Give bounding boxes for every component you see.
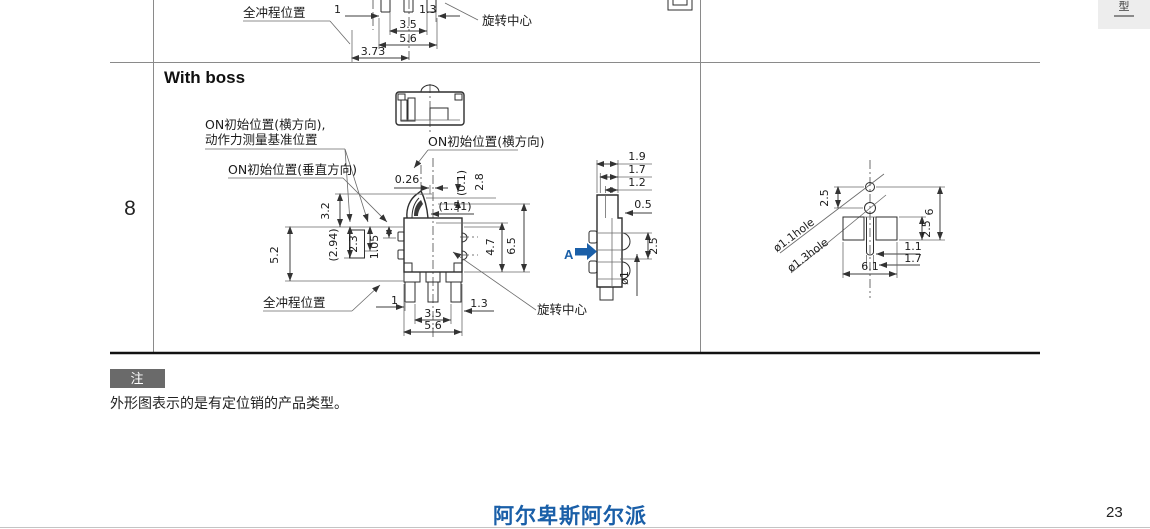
dim-0-26: 0.26 [395, 173, 420, 186]
dim-6-5: 6.5 [505, 237, 518, 255]
dim-2-94: (2.94) [327, 228, 340, 261]
full-stroke-label: 全冲程位置 [263, 295, 326, 310]
dim-top-5-6: 5.6 [399, 32, 417, 45]
dim-5-2: 5.2 [268, 246, 281, 264]
dim-top-1: 1 [334, 3, 341, 16]
datasheet-page: 全冲程位置 旋转中心 1 1.3 3.5 5.6 3.73 ON初始位置(横方向… [0, 0, 1150, 529]
dim-hp2-5: 2.5 [920, 220, 933, 238]
dim-3-2: 3.2 [319, 202, 332, 220]
view-a-letter: A [564, 247, 574, 262]
note-badge: 注 [110, 369, 165, 388]
dim-h1-7: 1.7 [904, 252, 922, 265]
note-text: 外形图表示的是有定位销的产品类型。 [110, 393, 348, 413]
dim-4-7: 4.7 [484, 238, 497, 256]
dim-s1-2: 1.2 [628, 176, 646, 189]
rotation-center-label-top: 旋转中心 [482, 13, 533, 28]
view-a-arrow-icon [575, 243, 597, 260]
dim-2-8: 2.8 [473, 173, 486, 191]
dim-s1-9: 1.9 [628, 150, 646, 163]
dim-2-3-boxed: 2.3 [347, 235, 360, 253]
side-index-tab: 型 [1098, 0, 1150, 29]
dim-s0-5: 0.5 [634, 198, 652, 211]
row-number: 8 [112, 197, 148, 221]
top-view [396, 84, 464, 133]
dim-b5-6: 5.6 [424, 319, 442, 332]
full-stroke-label-top: 全冲程位置 [243, 5, 306, 20]
hole-pattern-view: ø1.1hole ø1.3hole 2.5 6 2.5 1.1 1.7 6.1 [771, 160, 945, 298]
dim-1-51: (1.51) [438, 200, 471, 213]
dim-h6-1: 6.1 [861, 260, 879, 273]
side-view: 1.9 1.7 1.2 0.5 2.5 ø1 A [564, 150, 660, 300]
on-init-h-force-line1: ON初始位置(横方向), [205, 117, 325, 132]
section-heading: With boss [164, 68, 245, 88]
on-init-h-label: ON初始位置(横方向) [428, 134, 544, 149]
page-bottom-edge [0, 527, 1150, 528]
dim-top-3-5: 3.5 [399, 18, 417, 31]
callout-labels: ON初始位置(横方向), 动作力测量基准位置 ON初始位置(垂直方向) ON初始… [205, 117, 544, 222]
dim-top-1-3: 1.3 [419, 3, 437, 16]
dim-0-1: (0.1) [455, 170, 468, 196]
dim-h6: 6 [923, 209, 936, 216]
side-index-tab-underline [1114, 15, 1134, 17]
on-init-h-force-line2: 动作力测量基准位置 [205, 132, 318, 147]
page-number: 23 [1106, 504, 1123, 521]
dim-b1: 1 [391, 294, 398, 307]
dim-s1-7: 1.7 [628, 163, 646, 176]
dim-b1-3: 1.3 [470, 297, 488, 310]
previous-row-drawing: 全冲程位置 旋转中心 1 1.3 3.5 5.6 3.73 [243, 0, 692, 62]
dim-1-05: 1.05 [368, 235, 381, 260]
front-view-dims: 0.26 (0.1) 2.8 (1.51) 3.2 (2.94) 2.3 1.0… [263, 170, 588, 336]
on-init-v-label: ON初始位置(垂直方向) [228, 162, 357, 177]
footer-logo: 阿尔卑斯阿尔派 [493, 500, 647, 529]
dim-dia1: ø1 [618, 271, 631, 285]
dim-top-3-73: 3.73 [361, 45, 386, 58]
rotation-center-label: 旋转中心 [537, 302, 588, 317]
dim-s2-5: 2.5 [647, 237, 660, 255]
side-index-tab-label: 型 [1098, 0, 1150, 14]
dim-h2-5: 2.5 [818, 189, 831, 207]
